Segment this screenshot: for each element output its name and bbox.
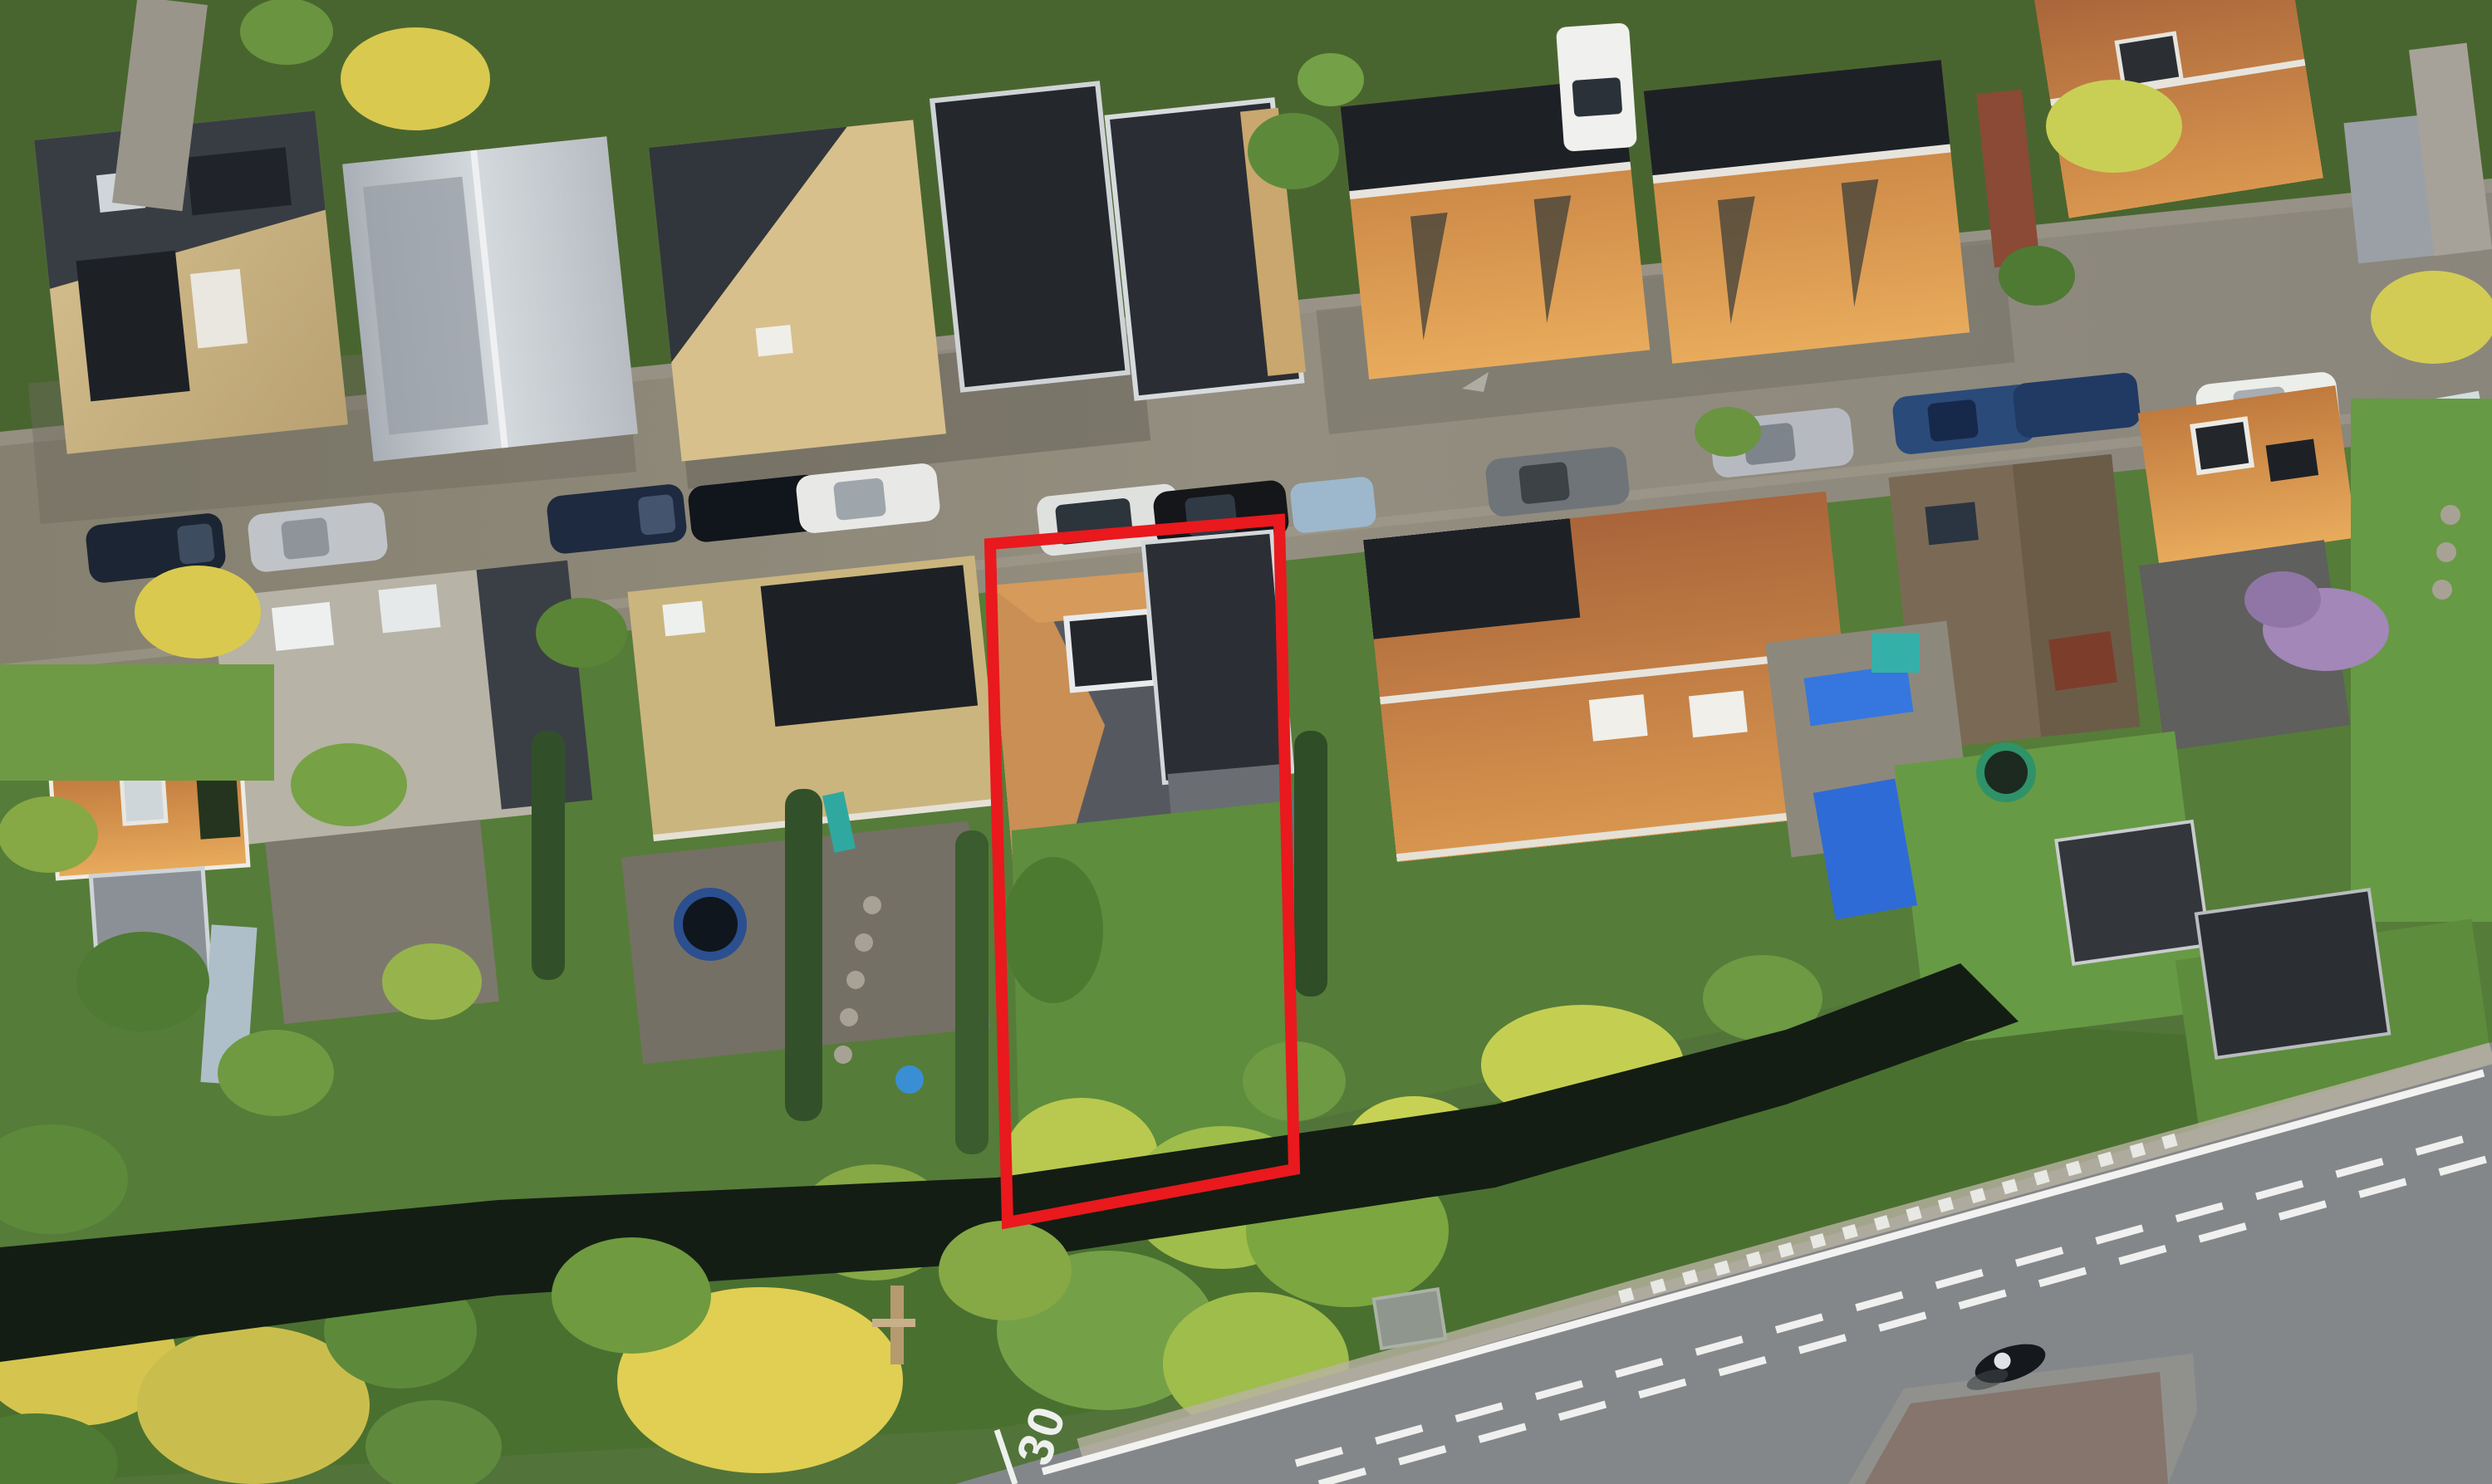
tree-canopy <box>552 1237 711 1354</box>
tree-canopy <box>76 932 209 1031</box>
car-light-blue <box>1289 476 1377 534</box>
trampoline-mat <box>1984 751 2028 794</box>
car-windshield <box>833 478 886 521</box>
tree-canopy <box>1695 407 1761 457</box>
solar-panel-array <box>761 565 978 727</box>
skylight <box>755 325 792 356</box>
skylight <box>378 584 440 633</box>
dormer-window <box>2117 33 2181 87</box>
lawn <box>0 664 274 781</box>
teal-tarp <box>1871 633 1920 673</box>
aerial-photo-stage: 30 <box>0 0 2492 1484</box>
round-pool-water <box>683 897 738 952</box>
dormer-window <box>2193 419 2252 473</box>
solar-panel-array <box>186 147 292 215</box>
tree-canopy <box>536 598 627 668</box>
tree-canopy <box>1248 113 1339 189</box>
aerial-scene: 30 <box>0 0 2492 1484</box>
tree-canopy <box>1298 53 1364 106</box>
house-roof-black <box>932 84 1127 390</box>
stone <box>2440 505 2460 525</box>
car-windshield <box>1927 399 1979 443</box>
house-roof <box>932 84 1127 390</box>
dormer <box>121 776 166 824</box>
solar-panel-array <box>2266 438 2319 482</box>
hedge <box>785 789 822 1121</box>
stone <box>2436 542 2456 562</box>
skylight <box>1067 611 1155 689</box>
lawn <box>2351 399 2492 922</box>
car-windshield <box>281 517 331 560</box>
tree-canopy <box>240 0 333 65</box>
skylight <box>272 602 334 651</box>
tree-canopy <box>382 943 482 1020</box>
skylight <box>662 600 705 636</box>
solar-panel-array <box>76 251 190 402</box>
stone <box>840 1008 858 1026</box>
hedge <box>532 731 565 980</box>
tree-canopy <box>291 743 407 826</box>
shed-roof-red <box>2048 631 2117 691</box>
hedge <box>955 830 988 1154</box>
stone <box>2432 580 2452 600</box>
roof-vent-white <box>190 269 248 349</box>
tree-canopy <box>2046 80 2182 173</box>
tree-canopy <box>2371 271 2492 364</box>
stone <box>863 896 881 914</box>
tree-canopy <box>0 796 98 873</box>
skylight <box>1589 694 1648 742</box>
utility-cabinet <box>1374 1289 1445 1348</box>
stone <box>855 933 873 952</box>
house-roof-orange <box>2138 385 2357 566</box>
stone <box>846 971 865 989</box>
house-roof <box>2138 385 2357 566</box>
tree-canopy <box>939 1221 1072 1320</box>
tree-canopy <box>1003 857 1103 1003</box>
car-windshield <box>637 494 676 536</box>
tree-canopy <box>218 1030 334 1116</box>
house-wall-dark-green <box>196 771 240 840</box>
garden-shed <box>2196 889 2389 1058</box>
car-windshield <box>1518 462 1570 505</box>
house-roof-black <box>1143 531 1293 782</box>
van-windshield <box>1572 77 1622 117</box>
tree-canopy <box>1999 246 2075 306</box>
hedge <box>1294 731 1327 997</box>
tree-canopy <box>341 27 490 130</box>
house-roof <box>1644 60 1970 364</box>
house-roof <box>649 120 946 461</box>
car-windshield <box>176 523 215 565</box>
lilac-bush <box>2244 571 2321 628</box>
garden-shed <box>2056 821 2209 964</box>
pole-crossbar <box>872 1319 915 1327</box>
skylight <box>1689 691 1748 738</box>
kiddie-pool <box>895 1065 924 1094</box>
house-roof <box>34 110 348 453</box>
house-roof <box>342 136 638 461</box>
tree-canopy <box>135 566 261 659</box>
stone <box>834 1046 852 1064</box>
skylight <box>1925 502 1978 545</box>
